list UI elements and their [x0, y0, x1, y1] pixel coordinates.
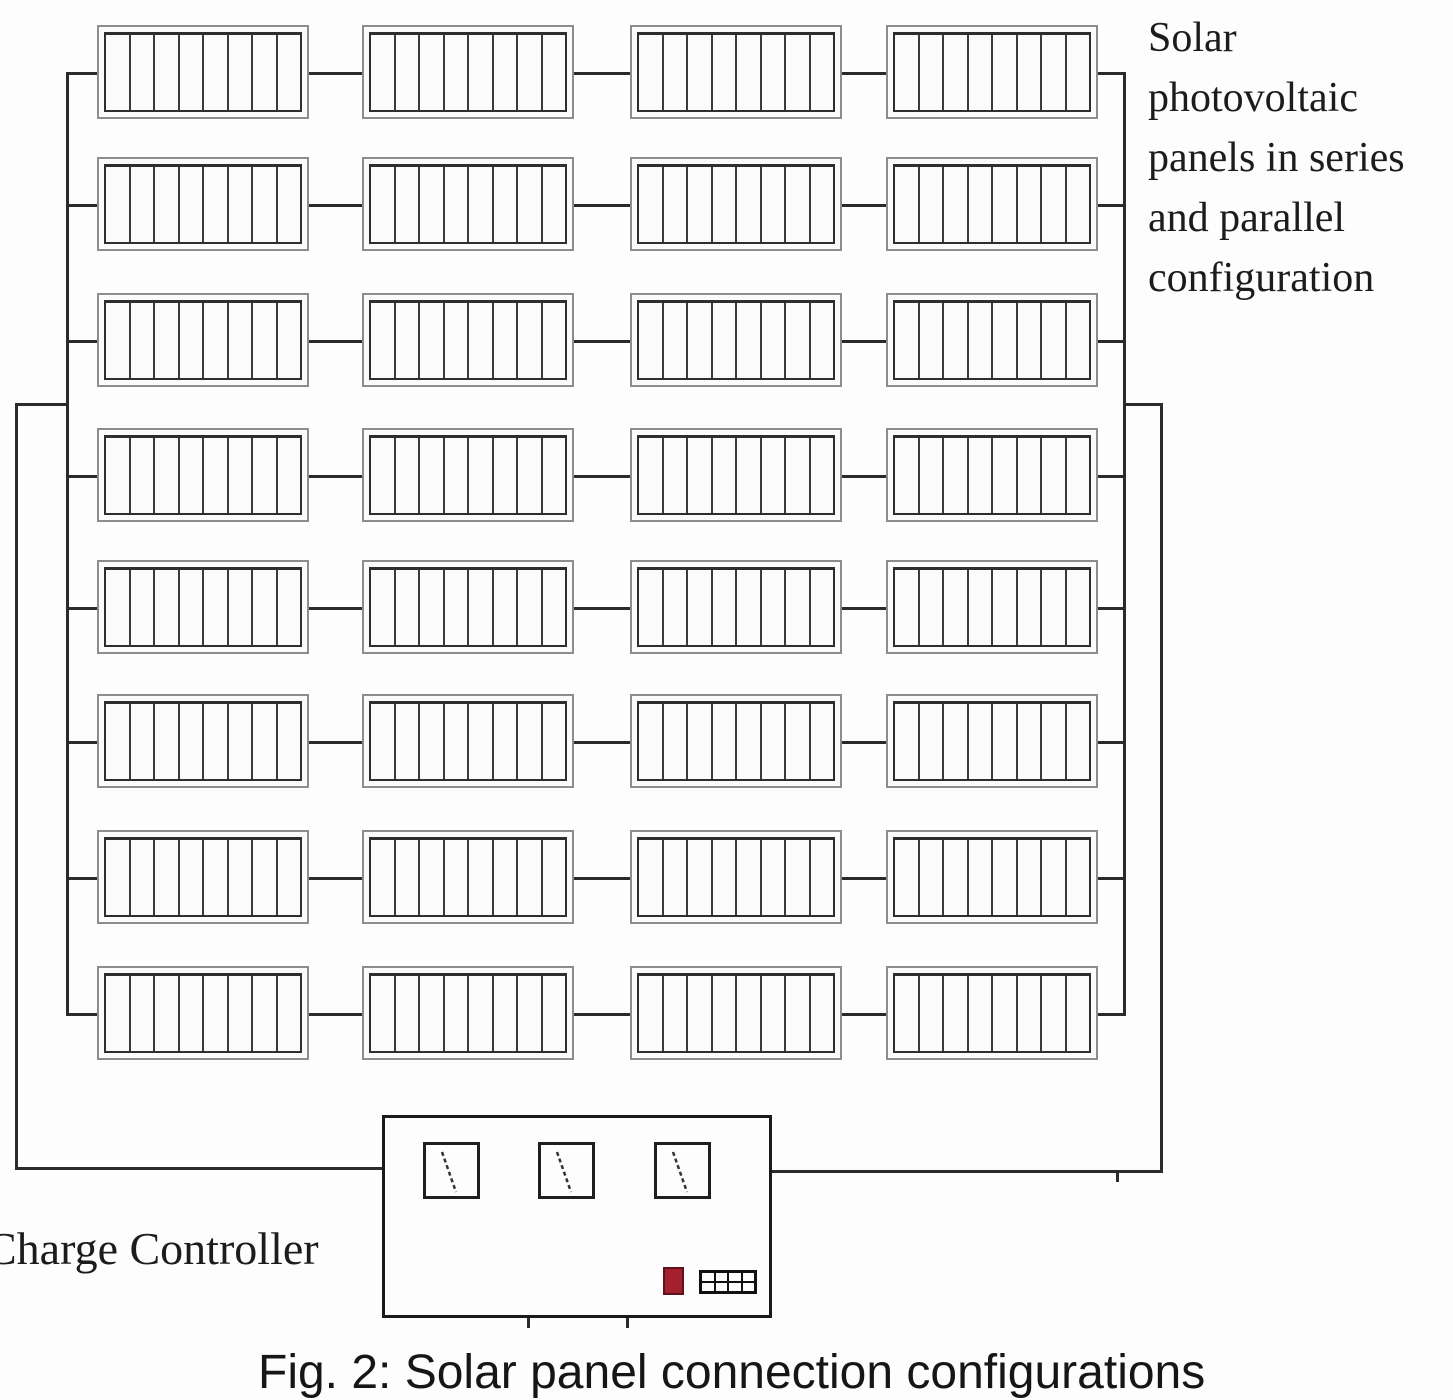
- solar-cell: [969, 570, 994, 645]
- solar-cell: [469, 976, 494, 1051]
- wire-segment: [1116, 1172, 1119, 1182]
- solar-cell: [106, 167, 131, 242]
- solar-cell: [1018, 570, 1043, 645]
- solar-cell: [664, 438, 689, 513]
- wire-segment: [1098, 72, 1123, 75]
- solar-cell: [469, 35, 494, 110]
- solar-cell: [664, 35, 689, 110]
- solar-panel: [97, 560, 309, 654]
- solar-cell: [639, 438, 664, 513]
- solar-cell: [494, 167, 519, 242]
- solar-cell: [180, 438, 205, 513]
- solar-cell: [278, 976, 301, 1051]
- solar-cell: [762, 167, 787, 242]
- solar-panel-cells: [637, 567, 835, 647]
- solar-cell: [278, 704, 301, 779]
- solar-panel: [362, 157, 574, 251]
- solar-cell: [396, 570, 421, 645]
- solar-panel: [97, 830, 309, 924]
- solar-cell: [518, 303, 543, 378]
- wire-segment: [66, 475, 97, 478]
- terminal-grid-cell: [715, 1272, 729, 1282]
- solar-cell: [278, 570, 301, 645]
- solar-cell: [131, 167, 156, 242]
- solar-cell: [1042, 167, 1067, 242]
- solar-cell: [494, 704, 519, 779]
- solar-cell: [969, 438, 994, 513]
- solar-cell: [688, 704, 713, 779]
- solar-cell: [944, 976, 969, 1051]
- solar-panel: [630, 25, 842, 119]
- solar-cell: [737, 35, 762, 110]
- solar-panel-cells: [104, 567, 302, 647]
- solar-panel-cells: [893, 701, 1091, 781]
- solar-cell: [664, 167, 689, 242]
- solar-cell: [993, 704, 1018, 779]
- wire-segment: [1098, 475, 1123, 478]
- solar-panel-cells: [637, 435, 835, 515]
- solar-cell: [895, 438, 920, 513]
- solar-cell: [1067, 570, 1090, 645]
- solar-cell: [811, 303, 834, 378]
- solar-cell: [420, 840, 445, 915]
- solar-cell: [180, 976, 205, 1051]
- solar-cell: [969, 840, 994, 915]
- solar-cell: [278, 35, 301, 110]
- solar-cell: [1018, 704, 1043, 779]
- solar-cell: [543, 704, 566, 779]
- solar-cell: [229, 438, 254, 513]
- solar-cell: [1018, 438, 1043, 513]
- solar-cell: [762, 570, 787, 645]
- solar-panel: [886, 157, 1098, 251]
- solar-cell: [786, 303, 811, 378]
- solar-cell: [204, 840, 229, 915]
- solar-cell: [469, 704, 494, 779]
- wire-segment: [574, 340, 630, 343]
- solar-panel: [97, 694, 309, 788]
- wire-segment: [15, 403, 66, 406]
- solar-cell: [639, 167, 664, 242]
- solar-cell: [131, 303, 156, 378]
- solar-array-diagram: Solar photovoltaic panels in series and …: [0, 0, 1453, 1379]
- solar-cell: [969, 976, 994, 1051]
- solar-cell: [396, 976, 421, 1051]
- solar-cell: [131, 704, 156, 779]
- meter-needle-icon: [541, 1145, 592, 1196]
- solar-panel: [362, 694, 574, 788]
- solar-cell: [253, 840, 278, 915]
- solar-panel-cells: [369, 973, 567, 1053]
- solar-panel: [630, 694, 842, 788]
- array-label: Solar photovoltaic panels in series and …: [1148, 8, 1405, 308]
- solar-cell: [371, 35, 396, 110]
- solar-panel-cells: [893, 300, 1091, 380]
- solar-cell: [518, 976, 543, 1051]
- terminal-grid-cell: [701, 1282, 715, 1292]
- solar-cell: [106, 35, 131, 110]
- solar-cell: [469, 438, 494, 513]
- solar-cell: [131, 840, 156, 915]
- solar-cell: [445, 704, 470, 779]
- solar-panel-cells: [369, 435, 567, 515]
- solar-cell: [944, 704, 969, 779]
- solar-cell: [445, 303, 470, 378]
- solar-cell: [204, 704, 229, 779]
- charge-controller-box: [382, 1115, 772, 1318]
- solar-cell: [1067, 167, 1090, 242]
- solar-panel: [97, 157, 309, 251]
- solar-cell: [737, 167, 762, 242]
- solar-panel: [886, 830, 1098, 924]
- solar-cell: [396, 840, 421, 915]
- solar-cell: [664, 303, 689, 378]
- solar-cell: [993, 167, 1018, 242]
- solar-cell: [639, 840, 664, 915]
- solar-cell: [420, 167, 445, 242]
- solar-cell: [688, 303, 713, 378]
- solar-panel: [97, 966, 309, 1060]
- solar-panel-cells: [637, 32, 835, 112]
- wire-segment: [66, 1013, 97, 1016]
- wire-segment: [842, 877, 886, 880]
- solar-cell: [1042, 303, 1067, 378]
- solar-cell: [396, 35, 421, 110]
- solar-cell: [811, 570, 834, 645]
- wire-segment: [309, 340, 362, 343]
- figure-caption: Fig. 2: Solar panel connection configura…: [258, 1345, 1205, 1400]
- solar-cell: [1018, 35, 1043, 110]
- terminal-grid-cell: [742, 1282, 756, 1292]
- solar-panel-cells: [369, 32, 567, 112]
- solar-cell: [993, 570, 1018, 645]
- wire-segment: [842, 1013, 886, 1016]
- solar-cell: [895, 976, 920, 1051]
- terminal-grid-icon: [699, 1270, 757, 1294]
- solar-panel: [97, 25, 309, 119]
- wire-segment: [1160, 403, 1163, 1173]
- solar-panel: [886, 25, 1098, 119]
- solar-cell: [1067, 976, 1090, 1051]
- solar-cell: [920, 438, 945, 513]
- solar-cell: [811, 704, 834, 779]
- solar-cell: [688, 35, 713, 110]
- solar-panel-cells: [893, 973, 1091, 1053]
- solar-cell: [229, 303, 254, 378]
- wire-segment: [574, 1013, 630, 1016]
- solar-cell: [278, 840, 301, 915]
- meter-icon: [654, 1142, 711, 1199]
- solar-panel: [630, 428, 842, 522]
- solar-cell: [204, 303, 229, 378]
- wire-segment: [574, 475, 630, 478]
- solar-panel-cells: [104, 837, 302, 917]
- solar-cell: [253, 167, 278, 242]
- solar-panel: [630, 560, 842, 654]
- solar-panel-cells: [893, 164, 1091, 244]
- solar-cell: [786, 704, 811, 779]
- solar-cell: [155, 167, 180, 242]
- wire-segment: [1098, 1013, 1123, 1016]
- solar-cell: [371, 167, 396, 242]
- solar-cell: [969, 704, 994, 779]
- wire-segment: [842, 340, 886, 343]
- array-label-line: panels in series: [1148, 128, 1405, 188]
- solar-cell: [396, 303, 421, 378]
- solar-cell: [664, 976, 689, 1051]
- solar-cell: [204, 976, 229, 1051]
- solar-cell: [895, 704, 920, 779]
- solar-cell: [944, 438, 969, 513]
- solar-cell: [639, 570, 664, 645]
- solar-cell: [639, 704, 664, 779]
- solar-cell: [445, 840, 470, 915]
- solar-cell: [1018, 976, 1043, 1051]
- solar-cell: [131, 438, 156, 513]
- solar-panel: [886, 560, 1098, 654]
- array-label-line: and parallel: [1148, 188, 1405, 248]
- solar-cell: [1042, 704, 1067, 779]
- solar-cell: [713, 35, 738, 110]
- solar-cell: [969, 35, 994, 110]
- solar-panel-cells: [369, 567, 567, 647]
- meter-icon: [423, 1142, 480, 1199]
- solar-cell: [253, 704, 278, 779]
- solar-cell: [253, 35, 278, 110]
- solar-cell: [371, 976, 396, 1051]
- solar-panel-cells: [104, 701, 302, 781]
- solar-panel: [886, 428, 1098, 522]
- wire-segment: [66, 72, 69, 1016]
- solar-cell: [543, 570, 566, 645]
- solar-cell: [895, 303, 920, 378]
- solar-cell: [920, 303, 945, 378]
- solar-cell: [920, 570, 945, 645]
- solar-panel: [362, 428, 574, 522]
- solar-panel: [362, 293, 574, 387]
- solar-cell: [131, 35, 156, 110]
- solar-panel-cells: [893, 837, 1091, 917]
- solar-cell: [944, 167, 969, 242]
- solar-cell: [543, 840, 566, 915]
- solar-cell: [396, 704, 421, 779]
- solar-cell: [180, 35, 205, 110]
- array-label-line: Solar: [1148, 8, 1405, 68]
- solar-cell: [737, 570, 762, 645]
- solar-cell: [1042, 570, 1067, 645]
- solar-cell: [494, 840, 519, 915]
- solar-panel-cells: [637, 973, 835, 1053]
- solar-cell: [518, 167, 543, 242]
- wire-segment: [842, 72, 886, 75]
- solar-cell: [106, 570, 131, 645]
- solar-cell: [993, 840, 1018, 915]
- solar-cell: [155, 438, 180, 513]
- solar-cell: [518, 704, 543, 779]
- solar-cell: [229, 704, 254, 779]
- solar-cell: [106, 840, 131, 915]
- solar-cell: [106, 303, 131, 378]
- wire-segment: [842, 475, 886, 478]
- wire-segment: [309, 877, 362, 880]
- solar-panel-cells: [369, 701, 567, 781]
- wire-segment: [574, 607, 630, 610]
- solar-cell: [494, 570, 519, 645]
- solar-cell: [278, 167, 301, 242]
- wire-segment: [574, 72, 630, 75]
- solar-cell: [993, 976, 1018, 1051]
- solar-cell: [204, 570, 229, 645]
- solar-cell: [518, 570, 543, 645]
- solar-cell: [1067, 438, 1090, 513]
- solar-cell: [494, 976, 519, 1051]
- solar-panel-cells: [893, 435, 1091, 515]
- status-indicator: [663, 1267, 684, 1295]
- solar-cell: [713, 570, 738, 645]
- solar-cell: [469, 840, 494, 915]
- solar-cell: [155, 840, 180, 915]
- meter-needle-icon: [426, 1145, 477, 1196]
- solar-cell: [469, 303, 494, 378]
- wire-segment: [574, 877, 630, 880]
- solar-cell: [993, 438, 1018, 513]
- solar-cell: [445, 976, 470, 1051]
- solar-cell: [786, 438, 811, 513]
- solar-cell: [944, 840, 969, 915]
- solar-cell: [920, 976, 945, 1051]
- wire-segment: [66, 204, 97, 207]
- solar-panel-cells: [637, 701, 835, 781]
- solar-panel-cells: [369, 300, 567, 380]
- solar-cell: [106, 438, 131, 513]
- solar-cell: [396, 167, 421, 242]
- solar-cell: [420, 35, 445, 110]
- solar-panel: [362, 830, 574, 924]
- solar-panel-cells: [104, 973, 302, 1053]
- solar-cell: [106, 976, 131, 1051]
- solar-cell: [737, 976, 762, 1051]
- terminal-grid-cell: [715, 1282, 729, 1292]
- solar-cell: [229, 167, 254, 242]
- terminal-grid-cell: [742, 1272, 756, 1282]
- wire-segment: [1098, 204, 1123, 207]
- wire-segment: [1098, 877, 1123, 880]
- wire-segment: [15, 403, 18, 1170]
- solar-cell: [811, 840, 834, 915]
- wire-segment: [309, 72, 362, 75]
- solar-cell: [786, 976, 811, 1051]
- solar-panel-cells: [637, 837, 835, 917]
- solar-panel: [97, 293, 309, 387]
- solar-cell: [811, 438, 834, 513]
- solar-cell: [371, 570, 396, 645]
- wire-segment: [66, 340, 97, 343]
- solar-cell: [786, 167, 811, 242]
- solar-cell: [664, 840, 689, 915]
- solar-cell: [229, 840, 254, 915]
- solar-cell: [737, 303, 762, 378]
- solar-cell: [445, 570, 470, 645]
- solar-cell: [371, 840, 396, 915]
- solar-panel: [97, 428, 309, 522]
- wire-segment: [309, 475, 362, 478]
- solar-cell: [518, 840, 543, 915]
- solar-cell: [944, 570, 969, 645]
- solar-panel: [630, 830, 842, 924]
- solar-cell: [762, 704, 787, 779]
- solar-cell: [494, 303, 519, 378]
- wire-segment: [309, 1013, 362, 1016]
- wire-segment: [1123, 72, 1126, 1016]
- solar-cell: [786, 35, 811, 110]
- solar-cell: [969, 303, 994, 378]
- solar-cell: [1067, 35, 1090, 110]
- solar-cell: [1042, 976, 1067, 1051]
- solar-panel: [630, 966, 842, 1060]
- solar-cell: [204, 167, 229, 242]
- solar-cell: [664, 570, 689, 645]
- solar-cell: [713, 167, 738, 242]
- solar-cell: [713, 840, 738, 915]
- terminal-grid-cell: [728, 1272, 742, 1282]
- solar-cell: [1018, 840, 1043, 915]
- solar-panel: [886, 293, 1098, 387]
- solar-cell: [811, 976, 834, 1051]
- solar-cell: [895, 840, 920, 915]
- wire-segment: [1098, 607, 1123, 610]
- solar-cell: [713, 438, 738, 513]
- solar-cell: [180, 840, 205, 915]
- solar-cell: [920, 35, 945, 110]
- solar-panel-cells: [637, 164, 835, 244]
- solar-cell: [155, 976, 180, 1051]
- wire-segment: [66, 72, 97, 75]
- solar-cell: [713, 303, 738, 378]
- solar-cell: [494, 35, 519, 110]
- solar-cell: [762, 840, 787, 915]
- solar-cell: [278, 303, 301, 378]
- solar-cell: [445, 438, 470, 513]
- solar-panel-cells: [104, 435, 302, 515]
- wire-segment: [574, 204, 630, 207]
- solar-cell: [993, 303, 1018, 378]
- wire-segment: [1098, 741, 1123, 744]
- solar-cell: [664, 704, 689, 779]
- solar-cell: [737, 840, 762, 915]
- terminal-grid-cell: [728, 1282, 742, 1292]
- solar-cell: [445, 167, 470, 242]
- solar-cell: [762, 303, 787, 378]
- wire-segment: [1098, 340, 1123, 343]
- solar-cell: [969, 167, 994, 242]
- solar-cell: [639, 35, 664, 110]
- wire-segment: [842, 607, 886, 610]
- solar-cell: [920, 840, 945, 915]
- solar-cell: [371, 303, 396, 378]
- solar-cell: [420, 976, 445, 1051]
- solar-cell: [762, 976, 787, 1051]
- solar-cell: [371, 704, 396, 779]
- solar-cell: [131, 570, 156, 645]
- wire-segment: [15, 1167, 382, 1170]
- solar-cell: [688, 167, 713, 242]
- solar-cell: [253, 303, 278, 378]
- wire-segment: [309, 607, 362, 610]
- solar-cell: [155, 570, 180, 645]
- solar-cell: [639, 303, 664, 378]
- wire-segment: [66, 877, 97, 880]
- solar-cell: [811, 35, 834, 110]
